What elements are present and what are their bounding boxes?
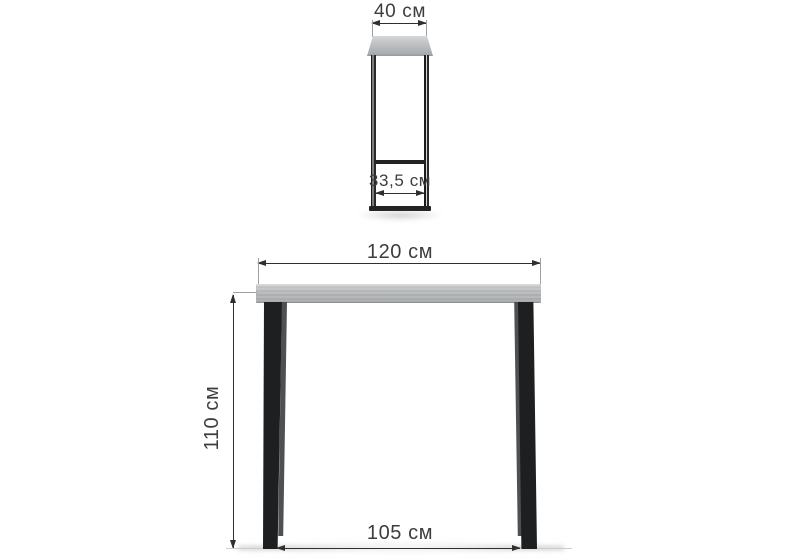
floor-line [226, 548, 263, 549]
extension-line [372, 20, 373, 37]
width-label: 120 см [340, 241, 460, 263]
side-view-crossbar [374, 160, 426, 164]
tabletop-side-view [367, 36, 433, 56]
extension-line [233, 292, 257, 293]
height-label: 110 см [201, 378, 223, 458]
width-dimension-arrow [258, 263, 540, 264]
extension-line [426, 20, 427, 37]
base-width-dimension-arrow [277, 548, 520, 549]
floor-line [537, 548, 572, 549]
height-dimension-arrow [233, 295, 234, 548]
side-view-shadow [356, 211, 444, 221]
extension-line [258, 258, 259, 286]
leg-depth-label: 33,5 см [350, 172, 450, 191]
extension-line [540, 258, 541, 286]
top-width-label: 40 см [350, 2, 450, 23]
base-width-label: 105 см [340, 522, 460, 544]
top-width-dimension-arrow [372, 23, 426, 24]
dimension-diagram: 40 см 33,5 см 120 см 110 см 105 см [0, 0, 800, 560]
leg-depth-dimension-arrow [376, 193, 424, 194]
tabletop-front-view [256, 284, 541, 303]
